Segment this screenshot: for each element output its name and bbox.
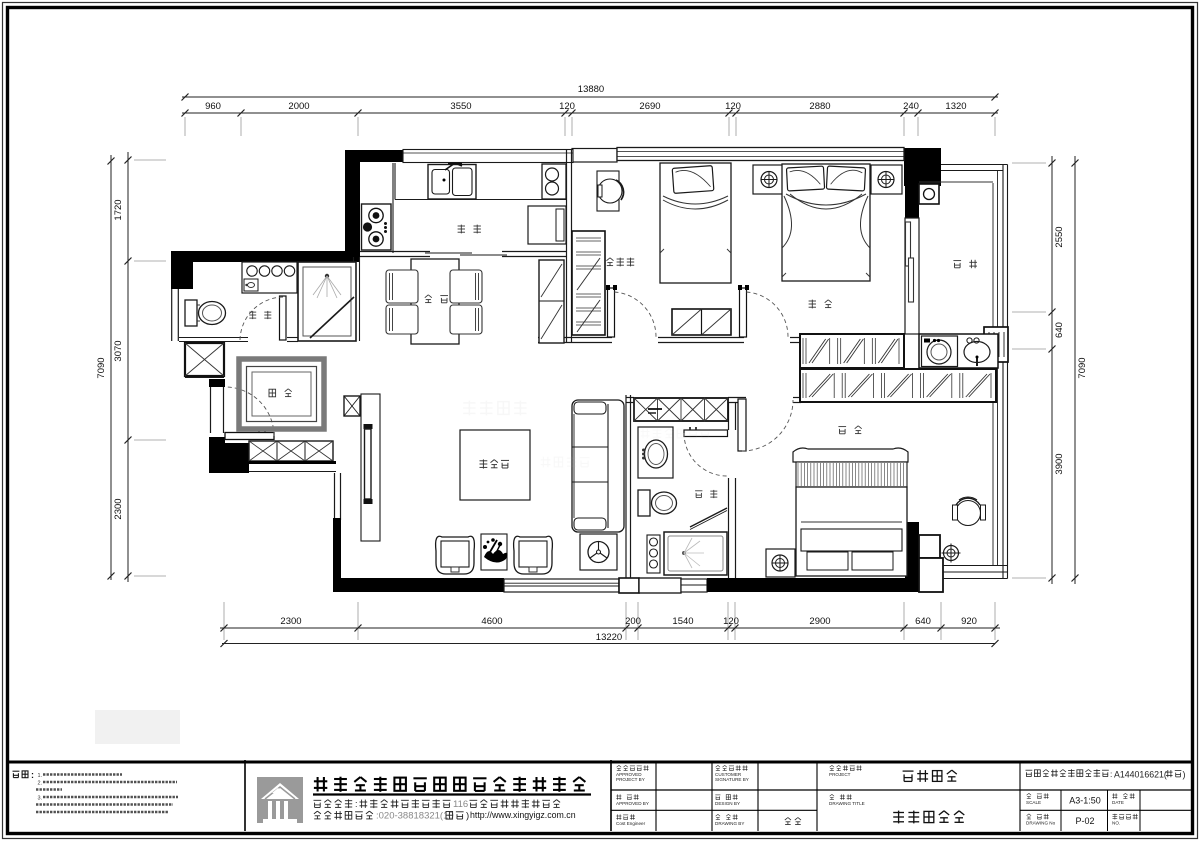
svg-text:DRAWING BY: DRAWING BY [715,821,744,826]
svg-text::: : [355,799,358,809]
svg-text:2690: 2690 [639,101,660,112]
svg-text:1540: 1540 [672,616,693,627]
svg-text:960: 960 [205,101,221,112]
svg-text:): ) [1183,770,1186,780]
svg-text:2300: 2300 [280,616,301,627]
svg-text:SCALE: SCALE [1026,800,1041,805]
svg-text::020-38818321(10: :020-38818321(10 [376,811,454,822]
svg-text:DATE: DATE [1112,800,1124,805]
svg-text:2000: 2000 [288,101,309,112]
svg-text:2300: 2300 [113,498,124,519]
svg-text:A3-1:50: A3-1:50 [1069,796,1101,806]
svg-text:13880: 13880 [578,84,604,95]
svg-text:200: 200 [625,616,641,627]
svg-text:NO.: NO. [1112,821,1120,826]
svg-text:1320: 1320 [945,101,966,112]
svg-text:1720: 1720 [113,199,124,220]
svg-text:7090: 7090 [96,357,107,378]
svg-text::: : [1110,769,1112,779]
svg-text:2.: 2. [38,781,43,787]
svg-text:3.: 3. [38,796,43,802]
svg-text:DESIGN BY: DESIGN BY [715,801,740,806]
svg-text:A144016621(: A144016621( [1114,770,1167,780]
svg-text:2880: 2880 [809,101,830,112]
svg-text:2900: 2900 [809,616,830,627]
svg-text:7090: 7090 [1077,357,1088,378]
svg-text:PROJECT BY: PROJECT BY [616,777,645,782]
svg-text:3550: 3550 [450,101,471,112]
svg-text:120: 120 [723,616,739,627]
svg-text:DRAWING TITLE: DRAWING TITLE [829,801,865,806]
svg-text:120: 120 [559,101,575,112]
svg-text:http://www.xingyigz.com.cn: http://www.xingyigz.com.cn [470,810,576,820]
svg-text:SIGNATURE BY: SIGNATURE BY [715,777,749,782]
svg-text:640: 640 [915,616,931,627]
svg-text:2550: 2550 [1054,226,1065,247]
svg-text:116: 116 [453,799,468,810]
svg-text:640: 640 [1054,322,1065,338]
svg-text:3900: 3900 [1054,453,1065,474]
svg-text:DRAWING No: DRAWING No [1026,821,1056,826]
svg-text:Cost Engineer: Cost Engineer [616,821,646,826]
svg-text:): ) [466,811,469,822]
svg-text:P-02: P-02 [1075,816,1094,826]
svg-text::: : [31,770,34,780]
svg-text:1.: 1. [38,773,43,779]
svg-text:APPROVED BY: APPROVED BY [616,801,649,806]
svg-text:3070: 3070 [113,340,124,361]
svg-text:4600: 4600 [481,616,502,627]
svg-text:240: 240 [903,101,919,112]
svg-text:920: 920 [961,616,977,627]
svg-text:PROJECT: PROJECT [829,772,851,777]
svg-text:13220: 13220 [596,632,622,643]
svg-text:120: 120 [725,101,741,112]
